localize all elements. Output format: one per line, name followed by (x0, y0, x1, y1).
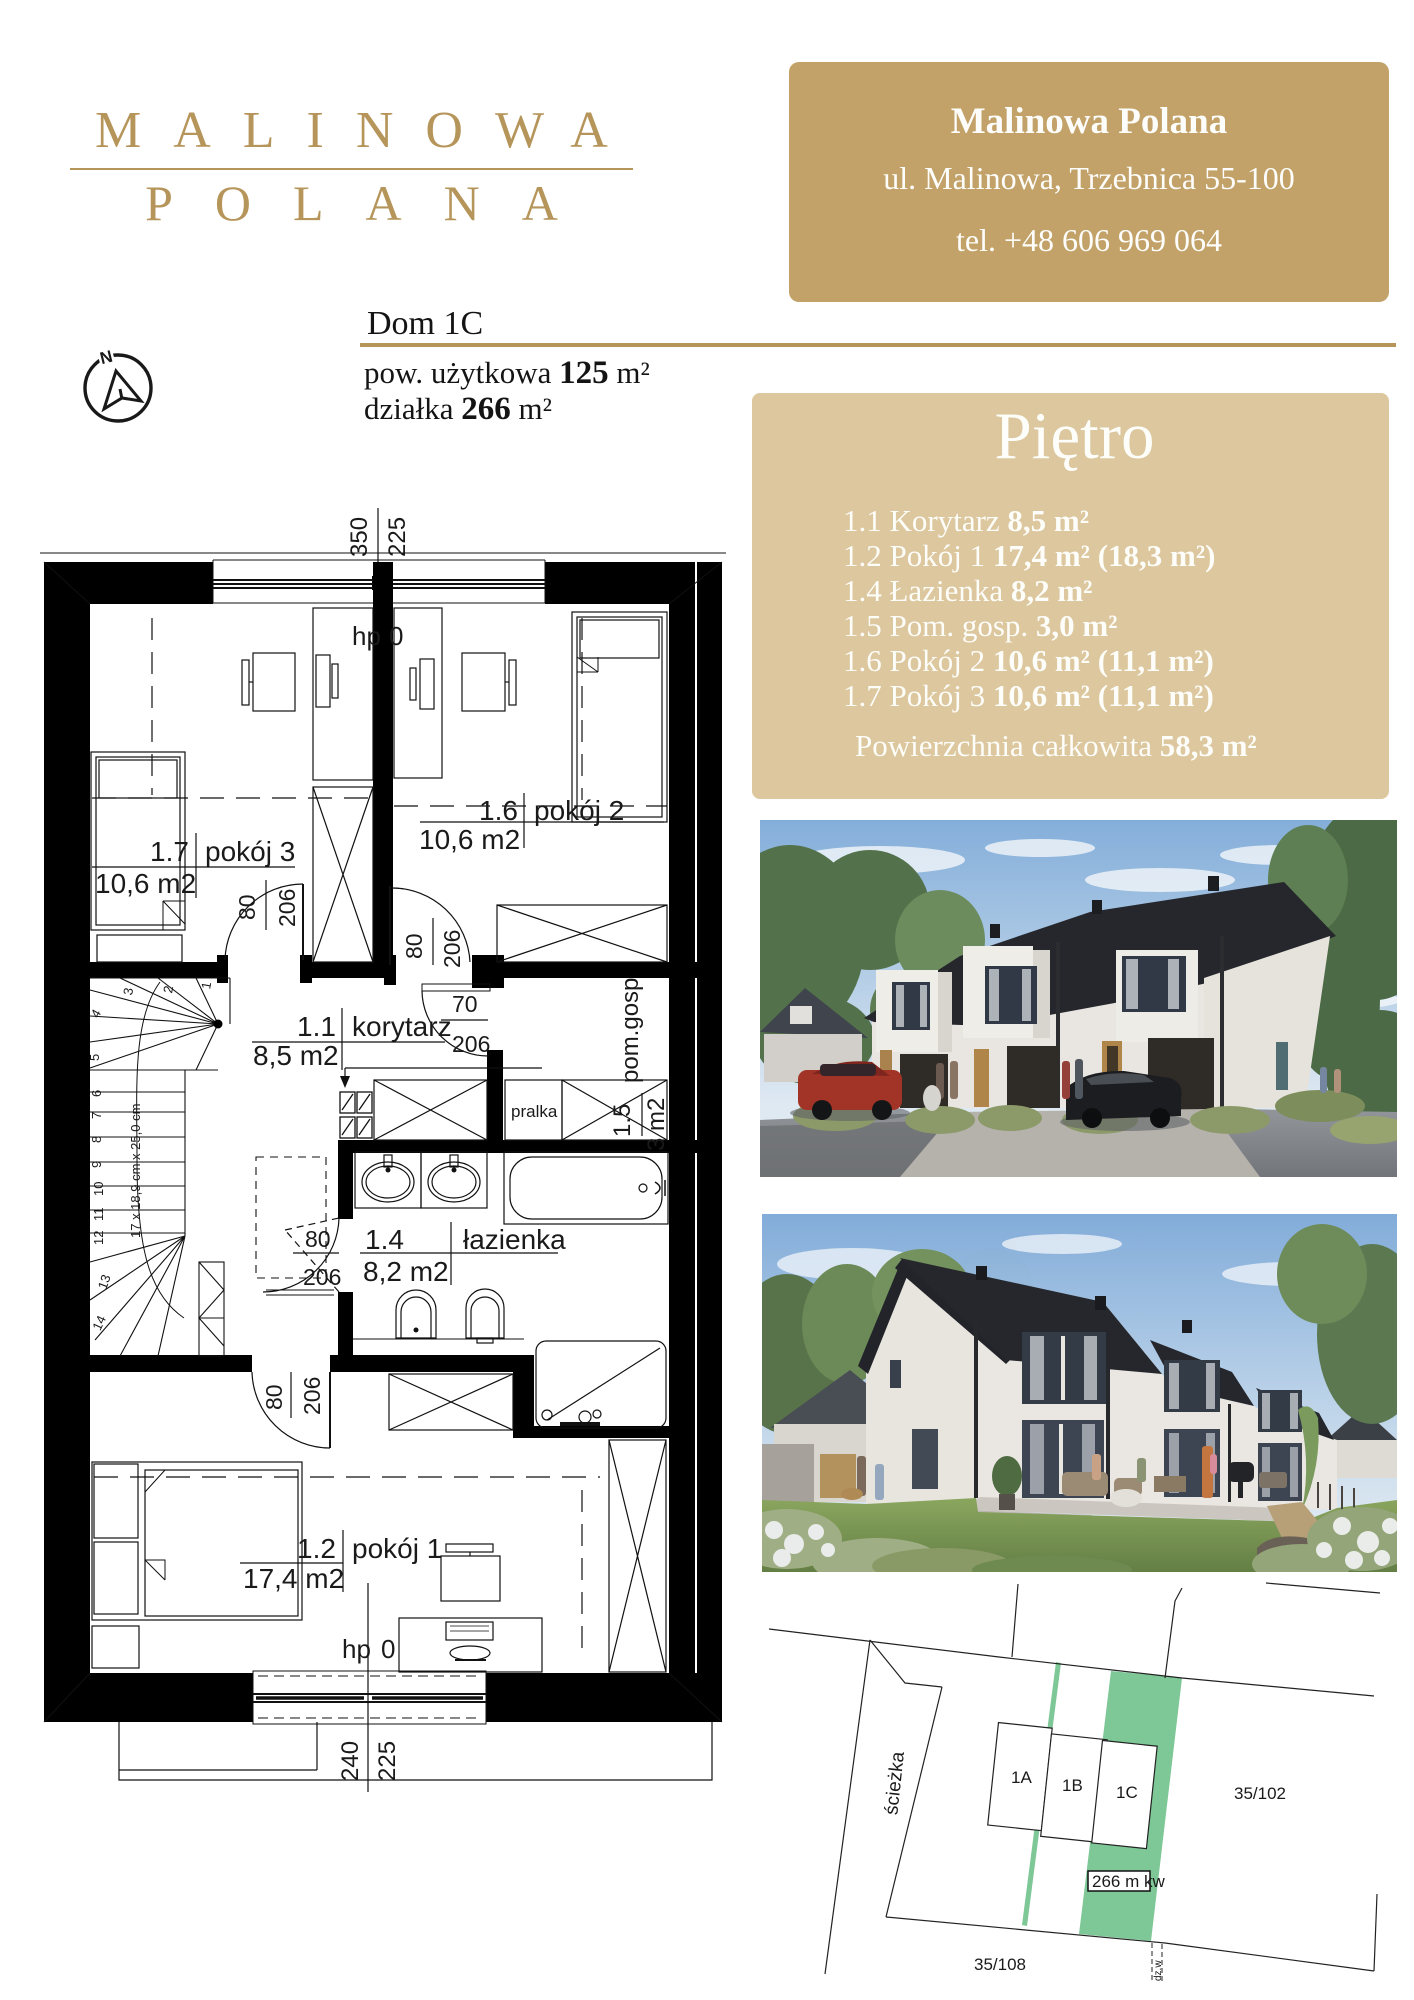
svg-text:35/108: 35/108 (974, 1955, 1026, 1974)
svg-text:206: 206 (452, 1031, 490, 1057)
svg-text:1C: 1C (1116, 1783, 1138, 1802)
svg-text:1.5: 1.5 (609, 1104, 636, 1137)
svg-text:350: 350 (346, 517, 373, 557)
svg-text:6: 6 (89, 1090, 104, 1097)
svg-text:1.1: 1.1 (297, 1011, 336, 1042)
svg-text:1: 1 (198, 981, 214, 991)
svg-text:0: 0 (381, 1634, 395, 1664)
svg-text:1B: 1B (1062, 1776, 1083, 1795)
svg-text:14: 14 (89, 1313, 109, 1332)
svg-text:dz.w: dz.w (1153, 1960, 1164, 1981)
svg-text:ścieżka: ścieżka (881, 1750, 909, 1816)
svg-text:17,4 m2: 17,4 m2 (243, 1563, 344, 1594)
svg-text:10: 10 (91, 1182, 106, 1196)
svg-text:206: 206 (303, 1264, 341, 1290)
svg-text:1.2: 1.2 (297, 1533, 336, 1564)
svg-text:1.4: 1.4 (365, 1224, 404, 1255)
svg-text:266 m kw: 266 m kw (1092, 1872, 1165, 1891)
svg-text:13: 13 (95, 1273, 114, 1292)
svg-text:8: 8 (89, 1136, 104, 1143)
svg-text:3 m2: 3 m2 (643, 1098, 670, 1151)
svg-text:11: 11 (91, 1208, 106, 1222)
svg-text:80: 80 (261, 1384, 287, 1410)
svg-text:80: 80 (234, 894, 260, 920)
svg-text:7: 7 (89, 1112, 104, 1119)
svg-text:1.6: 1.6 (479, 795, 518, 826)
svg-text:10,6 m2: 10,6 m2 (95, 868, 196, 899)
svg-text:12: 12 (91, 1231, 106, 1245)
svg-text:240: 240 (337, 1741, 364, 1781)
svg-text:225: 225 (374, 1741, 401, 1781)
svg-text:1A: 1A (1011, 1768, 1032, 1787)
svg-text:1.7: 1.7 (150, 836, 189, 867)
svg-text:0: 0 (389, 621, 403, 651)
svg-text:pokój 2: pokój 2 (534, 795, 624, 826)
svg-text:10,6 m2: 10,6 m2 (419, 824, 520, 855)
svg-text:łazienka: łazienka (463, 1224, 566, 1255)
svg-text:hp: hp (342, 1634, 371, 1664)
svg-text:206: 206 (299, 1377, 325, 1415)
svg-text:8,5 m2: 8,5 m2 (253, 1040, 339, 1071)
svg-text:pokój 1: pokój 1 (352, 1533, 442, 1564)
svg-text:5: 5 (87, 1054, 102, 1061)
svg-text:hp: hp (352, 621, 381, 651)
svg-text:pom.gosp: pom.gosp (617, 978, 644, 1083)
svg-text:8,2 m2: 8,2 m2 (363, 1256, 449, 1287)
svg-text:206: 206 (274, 889, 300, 927)
svg-text:9: 9 (89, 1161, 104, 1168)
svg-text:3: 3 (120, 987, 136, 997)
svg-text:70: 70 (452, 991, 478, 1017)
svg-text:2: 2 (160, 985, 176, 995)
svg-text:pralka: pralka (511, 1102, 558, 1121)
svg-text:80: 80 (401, 933, 427, 959)
svg-text:206: 206 (439, 930, 465, 968)
svg-text:80: 80 (305, 1226, 331, 1252)
svg-text:17 x 18,9 cm x 25,0 cm: 17 x 18,9 cm x 25,0 cm (128, 1104, 143, 1238)
svg-text:225: 225 (384, 517, 411, 557)
svg-text:pokój 3: pokój 3 (205, 836, 295, 867)
svg-text:35/102: 35/102 (1234, 1784, 1286, 1803)
svg-text:korytarz: korytarz (352, 1011, 452, 1042)
